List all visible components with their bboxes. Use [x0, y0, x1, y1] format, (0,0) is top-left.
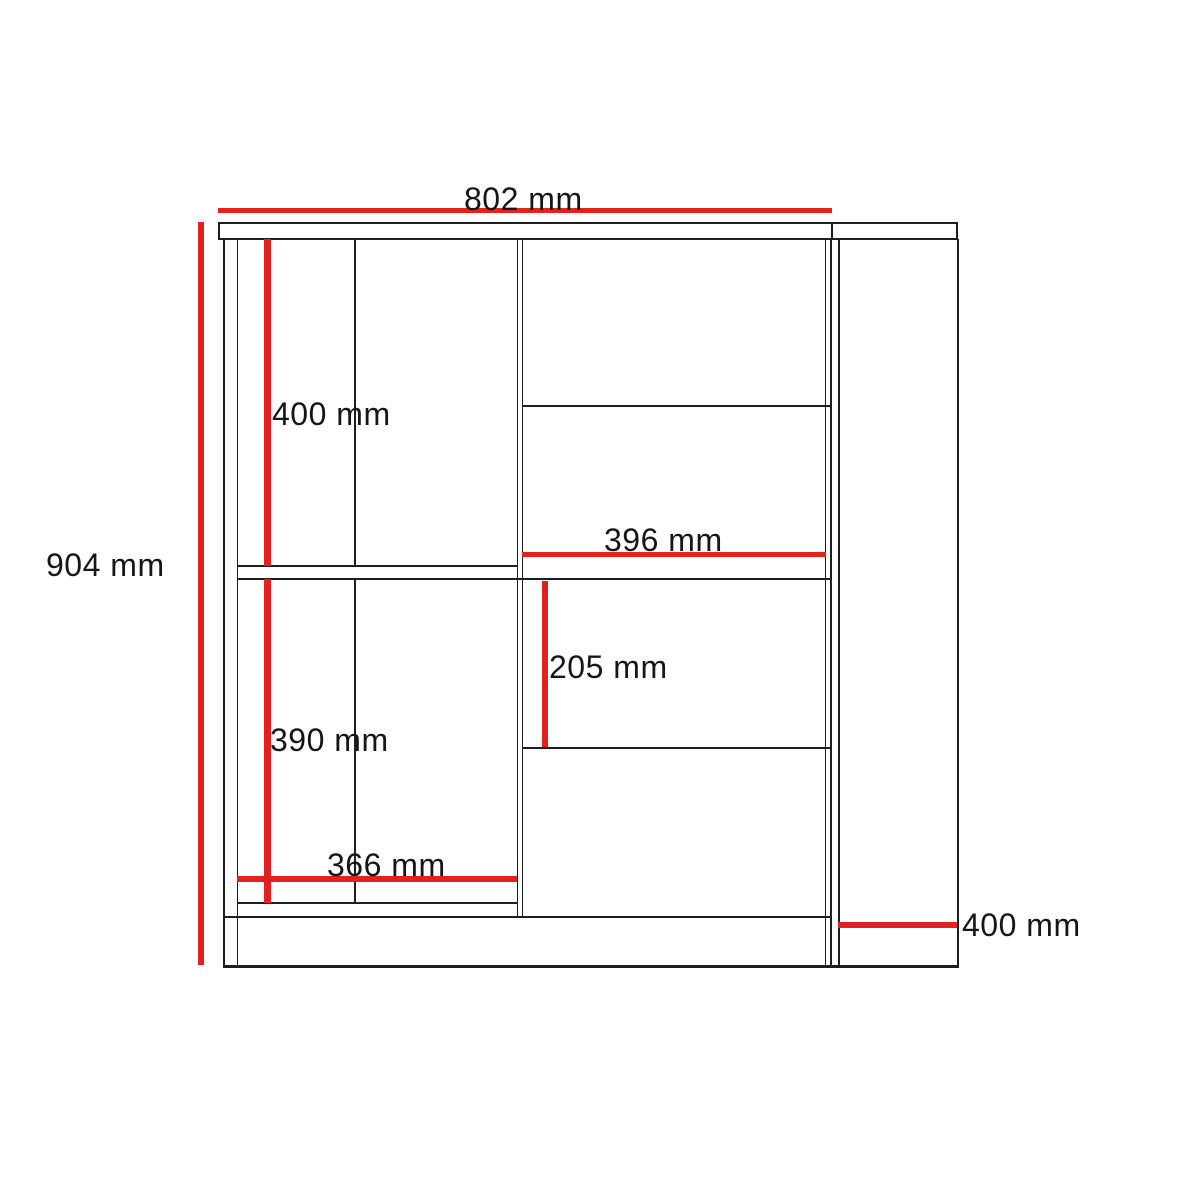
left-side-outer-edge [223, 239, 225, 967]
drawer-divider-3 [522, 747, 832, 749]
dim-line-overall-height [198, 222, 204, 965]
left-side-inner-edge [237, 239, 239, 965]
dim-label-side-panel-depth: 400 mm [962, 909, 1081, 941]
shelf-top-edge [237, 565, 518, 567]
right-side-outer-edge [830, 239, 832, 966]
dim-line-side-panel-depth [838, 922, 957, 928]
door-bottom-edge [237, 902, 518, 904]
top-panel-right-edge [956, 222, 958, 240]
dim-label-upper-left-compartment: 400 mm [272, 398, 391, 430]
dim-label-middle-drawer-height: 205 mm [549, 651, 668, 683]
dim-label-drawer-width: 396 mm [604, 524, 723, 556]
side-panel-left-edge [838, 239, 840, 966]
drawer-divider-1 [522, 405, 832, 407]
top-panel-bottom-edge [218, 238, 957, 240]
dim-label-left-compartment-width: 366 mm [327, 849, 446, 881]
dim-line-upper-left-compartment [264, 239, 271, 566]
cabinet-bottom-edge [223, 965, 959, 968]
dim-label-overall-height: 904 mm [46, 549, 165, 581]
shelf-bottom-drawer-divider [237, 578, 832, 580]
drawer-section-right-edge [825, 239, 827, 966]
dim-label-lower-left-compartment: 390 mm [270, 724, 389, 756]
side-panel-right-edge [957, 239, 959, 966]
top-panel-top-edge [218, 222, 957, 224]
plinth-top-edge [223, 916, 832, 918]
dim-line-middle-drawer-height [542, 581, 548, 747]
top-panel-seam [831, 222, 833, 240]
furniture-dimension-diagram: 802 mm 904 mm 400 mm 396 mm 205 mm 390 m… [0, 0, 1200, 1200]
top-panel-left-edge [218, 222, 220, 240]
dim-label-overall-width: 802 mm [464, 183, 583, 215]
